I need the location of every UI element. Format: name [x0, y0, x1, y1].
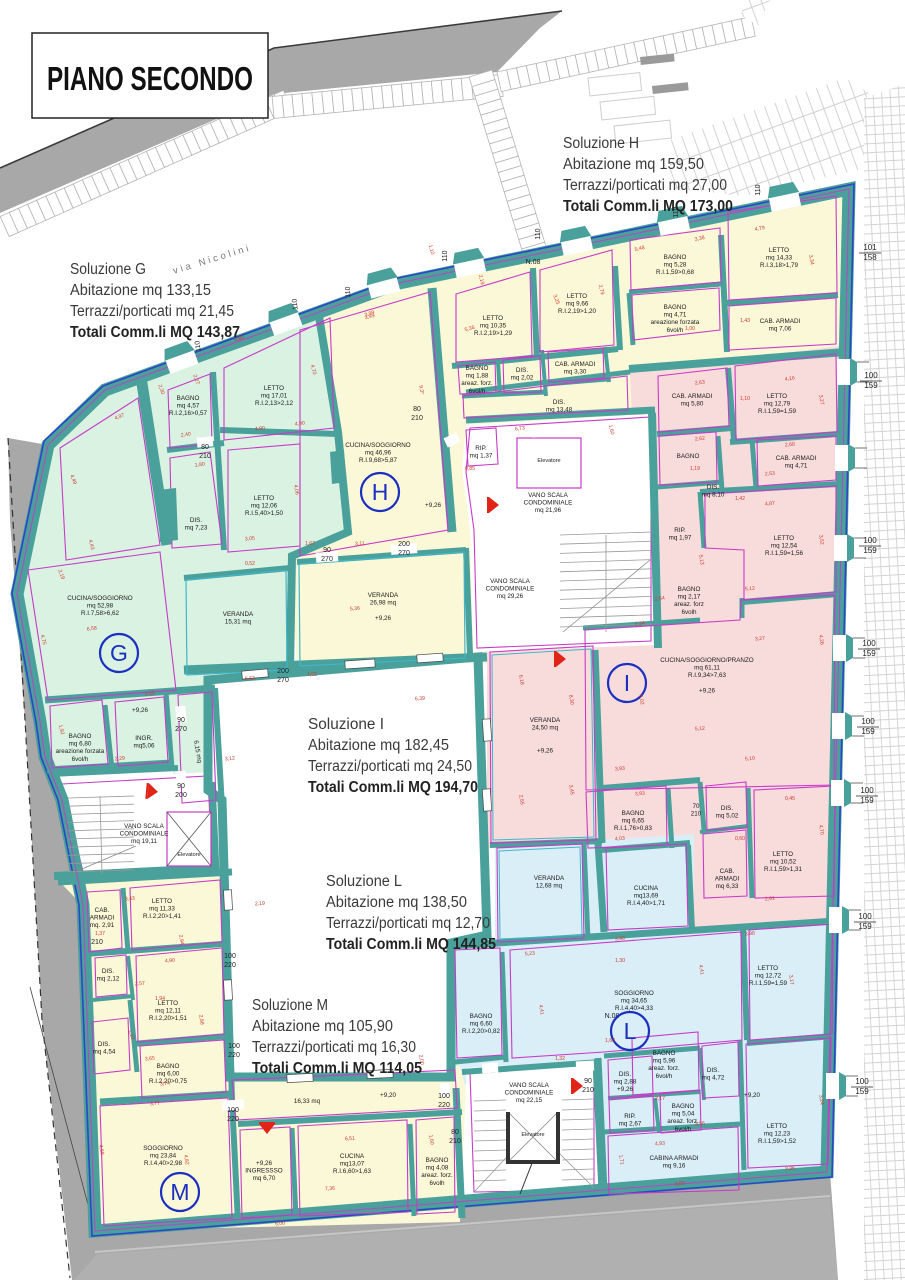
svg-text:INGR.: INGR. [135, 735, 153, 742]
svg-text:Terrazzi/porticati mq 12,70: Terrazzi/porticati mq 12,70 [326, 915, 490, 932]
svg-text:DIS.: DIS. [553, 399, 565, 406]
svg-text:1,30: 1,30 [615, 958, 625, 964]
svg-text:G: G [110, 640, 128, 666]
svg-text:LETTO: LETTO [758, 965, 778, 972]
svg-text:3,12: 3,12 [225, 755, 236, 762]
svg-text:6vol/h: 6vol/h [656, 1073, 673, 1080]
svg-text:R.I.2,13>2,12: R.I.2,13>2,12 [255, 400, 293, 407]
svg-text:210: 210 [199, 453, 211, 460]
svg-text:210: 210 [691, 811, 702, 818]
svg-text:VERANDA: VERANDA [368, 592, 399, 599]
svg-text:mq 5,02: mq 5,02 [716, 813, 739, 820]
svg-text:VERANDA: VERANDA [534, 875, 565, 882]
svg-text:DIS.: DIS. [707, 1067, 719, 1074]
svg-text:1,63: 1,63 [605, 1038, 615, 1044]
svg-text:5,00: 5,00 [275, 1221, 286, 1228]
svg-text:1,32: 1,32 [555, 1056, 565, 1062]
svg-text:159: 159 [864, 381, 878, 390]
svg-text:mq 46,96: mq 46,96 [365, 450, 392, 457]
svg-text:CAB.: CAB. [95, 907, 110, 914]
svg-text:LETTO: LETTO [152, 898, 172, 905]
svg-text:mq 10,52: mq 10,52 [770, 859, 797, 866]
svg-text:0,45: 0,45 [785, 796, 795, 802]
svg-text:159: 159 [858, 922, 872, 931]
svg-text:mq13,07: mq13,07 [340, 1161, 365, 1168]
svg-text:110: 110 [755, 184, 762, 195]
svg-text:mq 34,65: mq 34,65 [621, 998, 648, 1005]
svg-text:CAB. ARMADI: CAB. ARMADI [672, 393, 713, 400]
svg-text:areaz. forz.: areaz. forz. [421, 1172, 453, 1179]
svg-text:1,67: 1,67 [305, 541, 315, 547]
svg-text:areaz. forz: areaz. forz [674, 601, 704, 608]
svg-text:mq 6,80: mq 6,80 [69, 741, 92, 748]
svg-text:6,51: 6,51 [345, 1136, 356, 1143]
svg-text:VANO SCALA: VANO SCALA [490, 578, 531, 585]
svg-text:1,42: 1,42 [735, 496, 745, 502]
svg-text:CONDOMINIALE: CONDOMINIALE [505, 1090, 554, 1097]
svg-text:3,93: 3,93 [635, 791, 646, 798]
svg-text:mq 3,30: mq 3,30 [564, 369, 587, 376]
svg-text:Terrazzi/porticati mq 27,00: Terrazzi/porticati mq 27,00 [563, 177, 727, 194]
svg-text:80: 80 [413, 406, 421, 413]
svg-text:100: 100 [862, 639, 876, 648]
svg-text:0,52: 0,52 [245, 561, 255, 567]
svg-text:LETTO: LETTO [264, 385, 284, 392]
svg-text:200: 200 [277, 668, 289, 675]
svg-text:220: 220 [228, 1052, 240, 1059]
svg-text:BAGNO: BAGNO [664, 254, 687, 261]
svg-text:R.I.1,59=1,56: R.I.1,59=1,56 [765, 550, 803, 557]
svg-text:2,19: 2,19 [145, 690, 156, 697]
svg-text:R.I.5,40>1,50: R.I.5,40>1,50 [245, 510, 283, 517]
svg-text:VERANDA: VERANDA [223, 611, 254, 618]
svg-text:RIP.: RIP. [475, 445, 487, 452]
svg-text:6vol/h: 6vol/h [667, 327, 684, 334]
svg-text:100: 100 [864, 371, 878, 380]
svg-text:4,90: 4,90 [294, 420, 305, 427]
svg-text:mq 1,88: mq 1,88 [466, 373, 489, 380]
svg-text:+9,26: +9,26 [425, 502, 441, 509]
svg-text:3,05: 3,05 [245, 536, 256, 543]
svg-text:100: 100 [438, 1093, 450, 1100]
svg-text:2,53: 2,53 [765, 471, 776, 478]
svg-text:LETTO: LETTO [767, 393, 787, 400]
svg-text:159: 159 [863, 546, 877, 555]
svg-text:mq 17,01: mq 17,01 [261, 393, 288, 400]
svg-text:5,36: 5,36 [350, 606, 361, 613]
svg-text:159: 159 [860, 796, 874, 805]
svg-text:2,17: 2,17 [655, 1096, 665, 1102]
svg-text:VANO SCALA: VANO SCALA [509, 1082, 550, 1089]
svg-text:SOGGIORNO: SOGGIORNO [614, 990, 654, 997]
svg-text:mq 2,67: mq 2,67 [619, 1121, 642, 1128]
svg-text:210: 210 [91, 939, 103, 946]
svg-text:15,31 mq: 15,31 mq [225, 619, 252, 626]
svg-text:CUCINA: CUCINA [634, 885, 659, 892]
svg-text:mq 23,84: mq 23,84 [150, 1153, 177, 1160]
svg-text:mq 19,11: mq 19,11 [131, 838, 157, 845]
svg-text:+9,26: +9,26 [256, 1160, 272, 1167]
svg-text:BAGNO: BAGNO [470, 1013, 493, 1020]
svg-text:LETTO: LETTO [567, 293, 587, 300]
svg-text:CONDOMINIALE: CONDOMINIALE [524, 500, 573, 507]
svg-text:210: 210 [411, 415, 423, 422]
svg-text:100: 100 [224, 953, 236, 960]
svg-text:3,36: 3,36 [785, 1166, 796, 1173]
svg-text:R.I.9,34>7,63: R.I.9,34>7,63 [688, 672, 726, 679]
svg-text:2,62: 2,62 [695, 436, 706, 443]
svg-text:210: 210 [449, 1138, 461, 1145]
svg-text:4,05: 4,05 [675, 1181, 686, 1188]
svg-text:mq 12,54: mq 12,54 [771, 543, 798, 550]
svg-text:mq 1,37: mq 1,37 [470, 453, 493, 460]
svg-text:100: 100 [858, 912, 872, 921]
svg-text:Totali Comm.li MQ 144,85: Totali Comm.li MQ 144,85 [326, 936, 496, 953]
svg-text:R.I.3,18>1,79: R.I.3,18>1,79 [760, 262, 798, 269]
svg-text:mq 4,54: mq 4,54 [93, 1049, 116, 1056]
svg-text:R.I.7,58>6,62: R.I.7,58>6,62 [81, 610, 119, 617]
svg-text:R.I.2,19>1,29: R.I.2,19>1,29 [474, 330, 512, 337]
svg-text:0,60: 0,60 [735, 836, 745, 842]
svg-text:4,03: 4,03 [615, 836, 626, 843]
svg-text:Terrazzi/porticati mq 24,50: Terrazzi/porticati mq 24,50 [308, 758, 472, 775]
svg-text:Terrazzi/porticati mq 16,30: Terrazzi/porticati mq 16,30 [252, 1039, 416, 1056]
svg-text:3,27: 3,27 [755, 636, 766, 643]
svg-text:mq 12,72: mq 12,72 [755, 973, 782, 980]
svg-text:6vol/h: 6vol/h [469, 388, 486, 395]
svg-text:2,63: 2,63 [695, 379, 706, 386]
svg-text:mq 14,33: mq 14,33 [766, 255, 793, 262]
svg-text:BAGNO: BAGNO [177, 395, 200, 402]
svg-text:24,50 mq: 24,50 mq [532, 725, 559, 732]
svg-text:100: 100 [855, 1077, 869, 1086]
svg-text:Abitazione mq 133,15: Abitazione mq 133,15 [70, 282, 211, 299]
svg-text:100: 100 [861, 717, 875, 726]
svg-text:mq 4,71: mq 4,71 [785, 463, 808, 470]
svg-text:90: 90 [177, 783, 185, 790]
svg-text:M: M [170, 1179, 189, 1205]
svg-text:110: 110 [291, 298, 299, 310]
svg-text:mq 12,23: mq 12,23 [764, 1131, 791, 1138]
svg-text:DIS.: DIS. [707, 484, 719, 491]
svg-text:mq 12,06: mq 12,06 [251, 503, 278, 510]
svg-text:Soluzione M: Soluzione M [252, 997, 328, 1014]
svg-text:R.I.1,59>1,52: R.I.1,59>1,52 [758, 1138, 796, 1145]
svg-text:BAGNO: BAGNO [664, 304, 687, 311]
svg-text:270: 270 [321, 556, 333, 563]
svg-text:3,56: 3,56 [695, 1121, 706, 1128]
svg-text:R.I.2,16>0,57: R.I.2,16>0,57 [169, 410, 207, 417]
svg-text:100: 100 [863, 536, 877, 545]
svg-text:158: 158 [863, 253, 877, 262]
svg-text:mq 2,17: mq 2,17 [678, 594, 701, 601]
svg-text:BAGNO: BAGNO [69, 733, 92, 740]
svg-text:CUCINA/SOGGIORNO: CUCINA/SOGGIORNO [345, 442, 411, 449]
svg-text:100: 100 [228, 1043, 240, 1050]
svg-text:INGRESSSO: INGRESSSO [245, 1168, 283, 1175]
svg-text:101: 101 [863, 243, 877, 252]
svg-text:80: 80 [451, 1129, 459, 1136]
svg-text:CABINA ARMADI: CABINA ARMADI [650, 1155, 699, 1162]
svg-text:mq 12,11: mq 12,11 [155, 1008, 181, 1015]
svg-text:4,90: 4,90 [255, 425, 266, 432]
svg-text:mq 21,96: mq 21,96 [535, 507, 562, 514]
svg-text:mq 12,79: mq 12,79 [764, 401, 791, 408]
svg-text:mq 2,88: mq 2,88 [614, 1079, 637, 1086]
svg-text:mq 8,10: mq 8,10 [702, 492, 725, 499]
svg-text:80: 80 [201, 444, 209, 451]
svg-text:6volh: 6volh [429, 1180, 445, 1187]
svg-text:RIP.: RIP. [624, 1113, 636, 1120]
svg-text:6,39: 6,39 [415, 696, 426, 703]
svg-text:5,23: 5,23 [525, 951, 536, 958]
svg-text:LETTO: LETTO [774, 535, 794, 542]
svg-text:1,19: 1,19 [690, 466, 700, 472]
svg-text:1,37: 1,37 [95, 931, 105, 937]
svg-text:PIANO SECONDO: PIANO SECONDO [47, 60, 253, 97]
svg-text:SOGGIORNO: SOGGIORNO [143, 1145, 183, 1152]
svg-text:2,57: 2,57 [135, 981, 146, 988]
svg-text:VANO SCALA: VANO SCALA [528, 492, 569, 499]
svg-text:RIP.: RIP. [674, 527, 686, 534]
svg-text:6vol/h: 6vol/h [675, 1126, 692, 1133]
svg-text:BAGNO: BAGNO [653, 1050, 676, 1057]
svg-text:DIS.: DIS. [721, 805, 733, 812]
svg-text:Abitazione mq 138,50: Abitazione mq 138,50 [326, 894, 467, 911]
svg-text:CAB. ARMADI: CAB. ARMADI [555, 361, 596, 368]
svg-text:200: 200 [398, 541, 410, 548]
svg-text:270: 270 [175, 726, 187, 733]
svg-text:2,29: 2,29 [115, 755, 126, 762]
svg-text:mq 5,96: mq 5,96 [653, 1058, 676, 1065]
svg-text:110: 110 [535, 228, 542, 239]
svg-text:90: 90 [323, 547, 331, 554]
svg-text:+9,26: +9,26 [537, 747, 553, 754]
svg-text:6vol/h: 6vol/h [72, 756, 89, 763]
svg-text:DIS.: DIS. [619, 1071, 631, 1078]
svg-text:Soluzione H: Soluzione H [563, 135, 639, 152]
svg-text:LETTO: LETTO [773, 851, 793, 858]
svg-text:DIS.: DIS. [98, 1041, 110, 1048]
svg-text:mq 5,28: mq 5,28 [664, 262, 687, 269]
svg-text:90: 90 [584, 1078, 592, 1085]
svg-text:Totali Comm.li MQ 194,70: Totali Comm.li MQ 194,70 [308, 779, 478, 796]
svg-text:mq 4,71: mq 4,71 [664, 312, 687, 319]
svg-text:1,02: 1,02 [307, 672, 317, 678]
svg-text:3,98: 3,98 [745, 931, 756, 938]
svg-text:3,43: 3,43 [125, 896, 136, 903]
svg-text:Abitazione mq 182,45: Abitazione mq 182,45 [308, 737, 449, 754]
svg-text:90: 90 [177, 717, 185, 724]
svg-text:mq 4,72: mq 4,72 [702, 1075, 725, 1082]
svg-text:mq 6,33: mq 6,33 [716, 883, 739, 890]
svg-text:3,11: 3,11 [355, 541, 365, 548]
svg-text:CUCINA: CUCINA [340, 1153, 365, 1160]
svg-text:3,93: 3,93 [615, 766, 626, 773]
svg-text:3,98: 3,98 [615, 936, 626, 943]
svg-text:mq 6,65: mq 6,65 [622, 818, 645, 825]
svg-text:Totali Comm.li MQ 143,87: Totali Comm.li MQ 143,87 [70, 324, 240, 341]
svg-text:R.I.1,59=1,59: R.I.1,59=1,59 [758, 408, 796, 415]
svg-text:BAGNO: BAGNO [157, 1063, 180, 1070]
svg-text:Abitazione mq 105,90: Abitazione mq 105,90 [252, 1018, 393, 1035]
svg-text:CONDOMINIALE: CONDOMINIALE [486, 586, 535, 593]
svg-text:7,36: 7,36 [325, 1186, 336, 1193]
svg-text:BAGNO: BAGNO [466, 365, 489, 372]
svg-text:BAGNO: BAGNO [426, 1157, 449, 1164]
svg-text:+9,20: +9,20 [380, 1092, 396, 1099]
svg-text:mq13,69: mq13,69 [634, 893, 659, 900]
svg-text:ARMADI: ARMADI [90, 915, 115, 922]
svg-text:R.I.2,20>1,51: R.I.2,20>1,51 [149, 1015, 187, 1022]
svg-text:1,10: 1,10 [740, 396, 750, 402]
svg-text:mq 4,57: mq 4,57 [177, 403, 200, 410]
svg-text:R.I.1,59=1,59: R.I.1,59=1,59 [749, 980, 787, 987]
svg-text:BAGNO: BAGNO [672, 1103, 695, 1110]
svg-text:R.I.6,60>1,63: R.I.6,60>1,63 [333, 1168, 371, 1175]
svg-text:LETTO: LETTO [769, 247, 789, 254]
svg-text:2,68: 2,68 [785, 442, 796, 449]
svg-text:mq 2,02: mq 2,02 [511, 375, 534, 382]
svg-text:Totali Comm.li MQ 173,00: Totali Comm.li MQ 173,00 [563, 198, 733, 215]
svg-text:R.I.4,40>2,98: R.I.4,40>2,98 [144, 1160, 182, 1167]
svg-text:LETTO: LETTO [483, 315, 503, 322]
svg-text:5,12: 5,12 [745, 586, 756, 593]
svg-text:ARMADI: ARMADI [715, 876, 740, 883]
svg-text:110: 110 [345, 286, 352, 298]
svg-text:mq5,06: mq5,06 [133, 743, 155, 750]
svg-text:220: 220 [438, 1102, 450, 1109]
svg-text:mq 61,11: mq 61,11 [694, 665, 720, 672]
svg-text:mq 9,16: mq 9,16 [663, 1163, 686, 1170]
svg-text:3,74: 3,74 [160, 1081, 171, 1088]
svg-text:220: 220 [224, 962, 236, 969]
svg-text:26,98 mq: 26,98 mq [370, 600, 397, 607]
svg-text:mq 29,26: mq 29,26 [497, 593, 524, 600]
svg-text:N.08: N.08 [526, 259, 541, 266]
svg-text:VERANDA: VERANDA [530, 717, 561, 724]
svg-text:mq 4,08: mq 4,08 [426, 1165, 449, 1172]
svg-text:4,90: 4,90 [165, 958, 176, 965]
svg-text:R.I.1,59>1,31: R.I.1,59>1,31 [764, 866, 802, 873]
svg-text:DIS.: DIS. [102, 968, 114, 975]
svg-text:mq 11,33: mq 11,33 [149, 906, 175, 913]
svg-text:CUCINA/SOGGIORNO/PRANZO: CUCINA/SOGGIORNO/PRANZO [660, 657, 754, 664]
svg-text:12,68 mq: 12,68 mq [536, 883, 563, 890]
svg-text:16,33 mq: 16,33 mq [294, 1098, 321, 1105]
svg-text:mq 52,98: mq 52,98 [87, 603, 114, 610]
svg-text:210: 210 [582, 1087, 594, 1094]
svg-text:5,10: 5,10 [745, 756, 756, 763]
svg-text:DIS.: DIS. [516, 367, 528, 374]
svg-text:H: H [372, 479, 389, 505]
svg-text:R.I.2,20>0,82: R.I.2,20>0,82 [462, 1028, 500, 1035]
svg-text:159: 159 [861, 727, 875, 736]
svg-text:Terrazzi/porticati mq 21,45: Terrazzi/porticati mq 21,45 [70, 303, 234, 320]
svg-text:270: 270 [398, 550, 410, 557]
svg-text:159: 159 [855, 1087, 869, 1096]
svg-text:mq 13,48: mq 13,48 [546, 407, 573, 414]
svg-text:R.I.2,20>1,41: R.I.2,20>1,41 [143, 913, 181, 920]
svg-text:1,43: 1,43 [740, 318, 750, 324]
svg-text:6volh: 6volh [681, 609, 697, 616]
svg-text:3,77: 3,77 [150, 1101, 161, 1108]
svg-text:R.I.4,40>4,33: R.I.4,40>4,33 [615, 1005, 653, 1012]
svg-text:DIS.: DIS. [190, 517, 202, 524]
svg-text:4,93: 4,93 [655, 1141, 666, 1148]
svg-text:R.I.1,59>0,68: R.I.1,59>0,68 [656, 269, 694, 276]
svg-text:+9,26: +9,26 [375, 615, 391, 622]
svg-text:Elevatore: Elevatore [177, 852, 200, 858]
svg-text:VANO SCALA: VANO SCALA [124, 823, 165, 830]
svg-text:LETTO: LETTO [254, 495, 274, 502]
svg-text:BAGNO: BAGNO [622, 810, 645, 817]
svg-text:mq 6,70: mq 6,70 [253, 1175, 276, 1182]
svg-text:Totali Comm.li MQ 114,05: Totali Comm.li MQ 114,05 [252, 1060, 422, 1077]
svg-text:CAB.: CAB. [720, 868, 735, 875]
svg-text:220: 220 [227, 1116, 239, 1123]
svg-text:+9,26: +9,26 [699, 687, 715, 694]
svg-text:Abitazione mq 159,50: Abitazione mq 159,50 [563, 156, 704, 173]
svg-text:R.I.4,40>1,71: R.I.4,40>1,71 [627, 900, 665, 907]
svg-text:areaz. forz.: areaz. forz. [648, 1065, 680, 1072]
svg-text:R.I.2,19>1,20: R.I.2,19>1,20 [558, 308, 596, 315]
svg-text:areaz. forz.: areaz. forz. [461, 380, 493, 387]
svg-text:LETTO: LETTO [767, 1123, 787, 1130]
svg-text:L: L [624, 1018, 637, 1044]
svg-text:1,00: 1,00 [685, 326, 695, 332]
svg-text:mq 10,35: mq 10,35 [480, 323, 507, 330]
svg-text:mq 6,60: mq 6,60 [470, 1021, 493, 1028]
svg-text:Soluzione G: Soluzione G [70, 261, 146, 278]
svg-text:CONDOMINIALE: CONDOMINIALE [120, 831, 169, 838]
svg-text:5,63: 5,63 [245, 676, 256, 683]
svg-text:mq 6,00: mq 6,00 [157, 1071, 180, 1078]
svg-text:CUCINA/SOGGIORNO: CUCINA/SOGGIORNO [67, 595, 133, 602]
svg-text:mq 2,12: mq 2,12 [97, 976, 120, 983]
svg-text:70: 70 [692, 803, 700, 810]
svg-text:mq 5,04: mq 5,04 [672, 1111, 695, 1118]
svg-text:1,94: 1,94 [155, 996, 165, 1002]
svg-text:4,87: 4,87 [765, 501, 776, 508]
svg-text:Soluzione L: Soluzione L [326, 873, 402, 890]
svg-text:CAB. ARMADI: CAB. ARMADI [760, 318, 801, 325]
svg-text:159: 159 [862, 649, 876, 658]
svg-text:R.I.9,68>5,87: R.I.9,68>5,87 [359, 457, 397, 464]
svg-text:mq 1,97: mq 1,97 [669, 535, 692, 542]
svg-text:mq 22,15: mq 22,15 [516, 1097, 543, 1104]
svg-text:mq 9,66: mq 9,66 [566, 301, 589, 308]
svg-text:2,19: 2,19 [255, 901, 266, 908]
svg-text:5,12: 5,12 [695, 726, 706, 733]
svg-text:Elevatore: Elevatore [537, 458, 560, 464]
svg-text:+9,26: +9,26 [617, 1086, 633, 1093]
svg-text:0,85: 0,85 [465, 466, 475, 472]
svg-text:mq. 2,91: mq. 2,91 [90, 922, 115, 929]
svg-text:mq 7,23: mq 7,23 [185, 525, 208, 532]
svg-text:6,73: 6,73 [515, 425, 526, 432]
svg-text:3,65: 3,65 [145, 1056, 156, 1063]
svg-text:mq 5,80: mq 5,80 [681, 401, 704, 408]
svg-text:BAGNO: BAGNO [677, 453, 700, 460]
svg-text:100: 100 [860, 786, 874, 795]
svg-text:100: 100 [227, 1107, 239, 1114]
svg-text:BAGNO: BAGNO [678, 586, 701, 593]
svg-text:+9,20: +9,20 [744, 1092, 760, 1099]
svg-text:Elevatore: Elevatore [521, 1132, 544, 1138]
svg-text:+9,26: +9,26 [132, 707, 148, 714]
svg-text:270: 270 [277, 677, 289, 684]
